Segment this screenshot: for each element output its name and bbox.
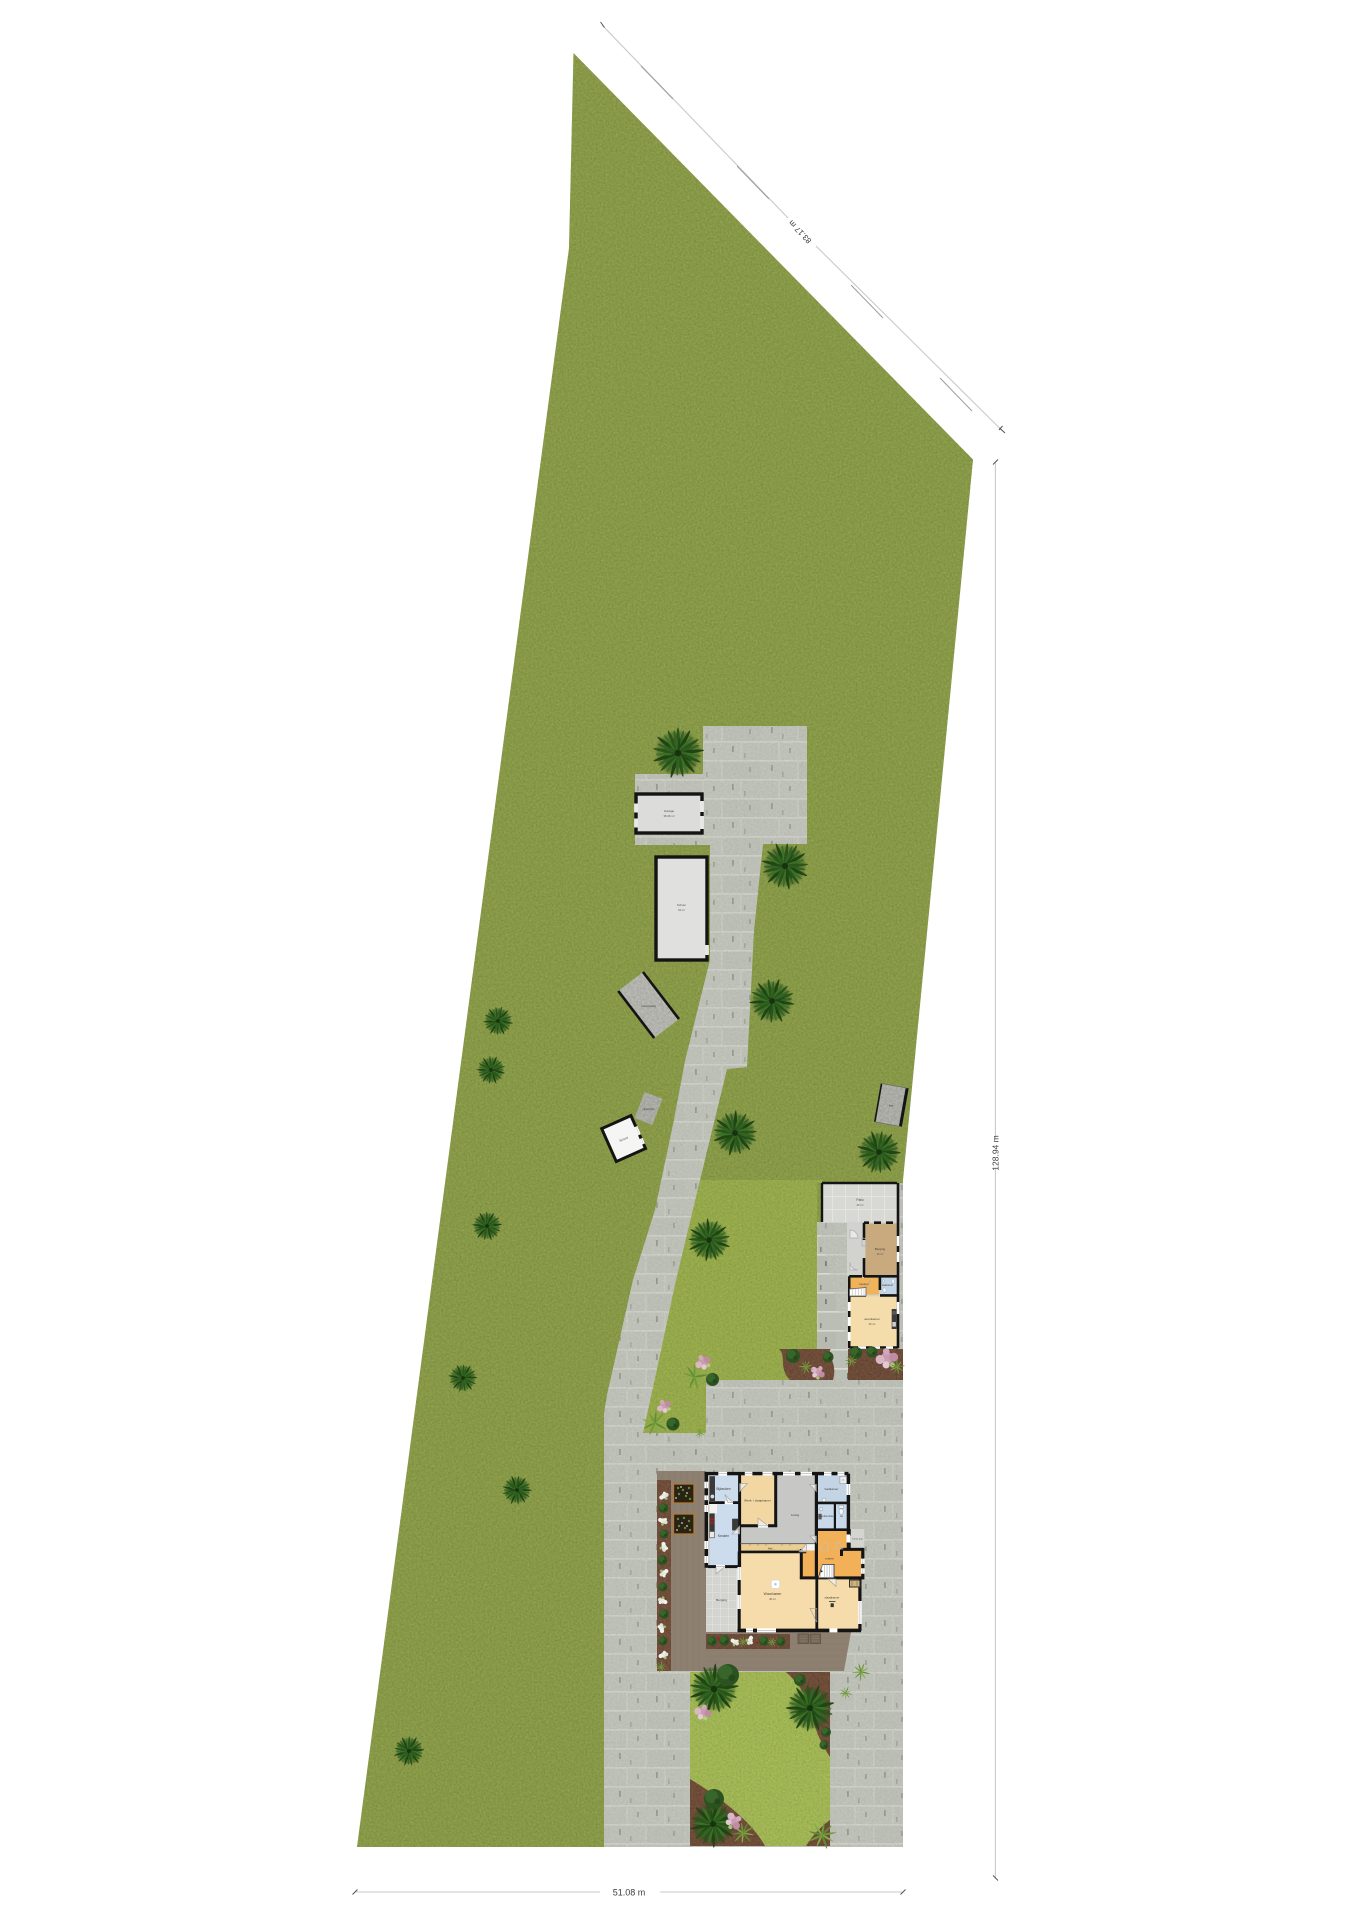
svg-text:kippenhok: kippenhok (643, 1107, 656, 1111)
svg-text:slaapkamer: slaapkamer (825, 1596, 840, 1600)
svg-text:entree pad: entree pad (852, 1538, 863, 1541)
svg-text:badkamer: badkamer (882, 1284, 893, 1287)
svg-text:52 m²: 52 m² (678, 908, 685, 912)
svg-text:Keuken: Keuken (718, 1534, 729, 1538)
svg-text:Hal: Hal (768, 1546, 773, 1550)
svg-text:Living: Living (791, 1513, 799, 1517)
svg-text:badkamer: badkamer (825, 1487, 839, 1491)
svg-text:51.08 m: 51.08 m (613, 1888, 646, 1898)
svg-text:Schuur: Schuur (677, 903, 686, 907)
svg-text:Woonkamer: Woonkamer (764, 1592, 783, 1596)
svg-text:35 m²: 35 m² (869, 1322, 876, 1326)
svg-text:woonkamer: woonkamer (864, 1317, 880, 1321)
svg-text:Patio: Patio (856, 1198, 863, 1202)
svg-text:entree: entree (825, 1557, 834, 1561)
svg-text:38.46 m²: 38.46 m² (663, 814, 674, 818)
svg-text:kas: kas (889, 1104, 894, 1108)
svg-text:Bijkeuken: Bijkeuken (716, 1487, 730, 1491)
svg-text:keuken: keuken (859, 1282, 868, 1286)
svg-text:16 m²: 16 m² (877, 1252, 884, 1256)
svg-text:doucheruimte: doucheruimte (818, 1515, 834, 1518)
svg-text:46 m²: 46 m² (769, 1597, 776, 1601)
svg-text:Berging: Berging (716, 1598, 727, 1602)
svg-text:128.94 m: 128.94 m (991, 1135, 1001, 1170)
svg-text:28 m²: 28 m² (857, 1203, 864, 1207)
svg-text:Berging: Berging (875, 1247, 886, 1251)
svg-text:houtopslag: houtopslag (641, 1004, 656, 1008)
svg-text:Garage: Garage (664, 809, 675, 813)
svg-text:Werk- / slaapkamer: Werk- / slaapkamer (744, 1499, 771, 1503)
